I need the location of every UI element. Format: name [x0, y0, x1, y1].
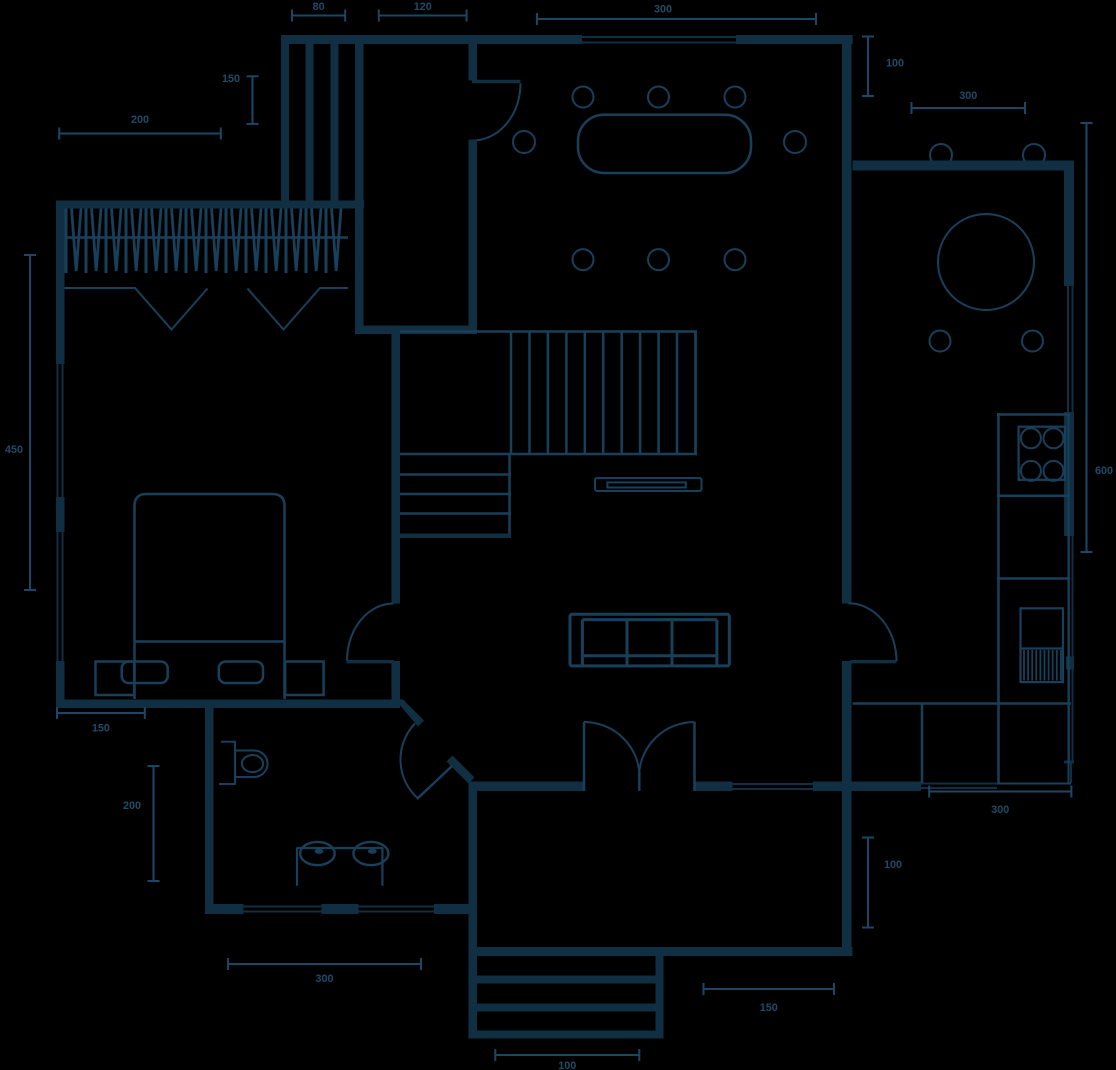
svg-text:150: 150 — [92, 723, 110, 735]
svg-text:450: 450 — [5, 444, 23, 456]
svg-text:300: 300 — [959, 90, 977, 102]
svg-text:100: 100 — [884, 859, 902, 871]
svg-text:300: 300 — [315, 973, 333, 985]
svg-text:100: 100 — [886, 58, 904, 70]
svg-text:300: 300 — [991, 804, 1009, 816]
svg-text:150: 150 — [760, 1002, 778, 1014]
svg-text:200: 200 — [131, 114, 149, 126]
svg-text:100: 100 — [558, 1060, 576, 1070]
svg-text:300: 300 — [654, 4, 672, 16]
svg-text:150: 150 — [222, 73, 240, 85]
svg-text:200: 200 — [123, 800, 141, 812]
svg-text:600: 600 — [1095, 465, 1113, 477]
svg-text:120: 120 — [414, 1, 432, 13]
svg-text:80: 80 — [313, 1, 325, 13]
